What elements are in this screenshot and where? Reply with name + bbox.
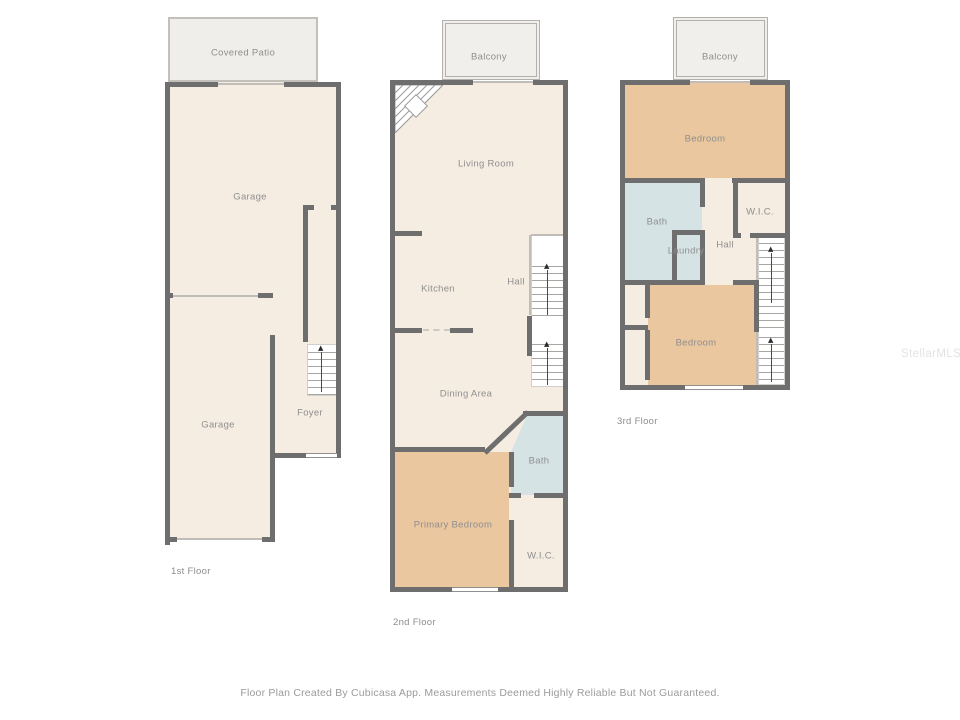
room-balcony-2f — [442, 20, 540, 80]
stair-top-line — [531, 234, 563, 236]
wall — [620, 80, 690, 85]
room-label: Balcony — [471, 52, 507, 63]
room-label: Laundry — [668, 246, 704, 257]
stairs-up-arrow-icon: ▲ — [544, 341, 549, 348]
floor-caption: 3rd Floor — [617, 416, 658, 427]
window — [452, 587, 498, 592]
wall — [620, 325, 648, 330]
balcony-door-opening — [473, 81, 533, 83]
wall — [165, 82, 170, 545]
room-label: Foyer — [297, 408, 323, 419]
wall — [754, 280, 759, 332]
wall — [395, 328, 422, 333]
wall — [331, 205, 341, 210]
patio-door-opening — [218, 83, 284, 85]
room-label: Bedroom — [676, 338, 717, 349]
floor-plan-canvas: ▲ Covered Patio Garage Garage Foyer 1st … — [0, 0, 960, 720]
wall — [700, 230, 705, 285]
stairs-up-arrow-icon: ▲ — [318, 345, 323, 352]
room-label: W.I.C. — [527, 551, 555, 562]
room-label: Dining Area — [440, 389, 492, 400]
wall — [733, 233, 741, 238]
window — [685, 385, 743, 390]
kitchen-counter-line — [423, 329, 450, 331]
wall — [733, 183, 738, 238]
stair-direction-line — [771, 344, 772, 382]
room-label: W.I.C. — [746, 207, 774, 218]
wall — [509, 452, 514, 487]
wall — [785, 80, 790, 390]
stair-direction-line — [547, 270, 548, 315]
wall — [395, 231, 422, 236]
room-label: Kitchen — [421, 284, 455, 295]
room-bedroom-lower — [648, 285, 757, 385]
wall — [750, 233, 785, 238]
wall — [258, 293, 273, 298]
wall — [563, 80, 568, 592]
wall — [390, 80, 473, 85]
room-label: Living Room — [458, 159, 514, 170]
wall — [523, 411, 563, 416]
room-garage-lower — [167, 295, 274, 540]
wall — [390, 80, 395, 592]
room-label: Bedroom — [685, 134, 726, 145]
wall — [645, 330, 650, 380]
wall — [509, 520, 514, 587]
wall — [270, 335, 275, 542]
wall — [527, 316, 532, 356]
stairs-up-arrow-icon: ▲ — [768, 246, 773, 253]
stairs-up-arrow-icon: ▲ — [544, 263, 549, 270]
wall — [620, 178, 705, 183]
room-label: Garage — [201, 420, 235, 431]
room-label: Bath — [529, 456, 550, 467]
balcony-door-opening — [690, 81, 750, 83]
wall — [620, 80, 625, 390]
stairs-up-arrow-icon: ▲ — [768, 337, 773, 344]
room-label: Garage — [233, 192, 267, 203]
wall — [303, 205, 314, 210]
wall — [336, 82, 341, 458]
open-area-hatch — [395, 85, 443, 133]
balcony-rail — [676, 20, 765, 77]
floor-caption: 2nd Floor — [393, 617, 436, 628]
floor-caption: 1st Floor — [171, 566, 211, 577]
balcony-rail — [445, 23, 537, 77]
room-label: Balcony — [702, 52, 738, 63]
room-bedroom-upper — [625, 82, 785, 178]
wall — [509, 493, 521, 498]
garage-divider-door — [170, 295, 258, 297]
wall — [165, 537, 177, 542]
wall — [284, 82, 341, 87]
stair-treads — [308, 352, 336, 395]
stair-direction-line — [771, 253, 772, 303]
stair-direction-line — [321, 352, 322, 392]
front-door — [306, 453, 337, 458]
watermark: StellarMLS — [901, 348, 960, 360]
room-label: Bath — [647, 217, 668, 228]
wall — [732, 178, 790, 183]
disclaimer-text: Floor Plan Created By Cubicasa App. Meas… — [0, 687, 960, 699]
room-label: Hall — [507, 277, 525, 288]
stair-direction-line — [547, 348, 548, 385]
wall — [395, 447, 485, 452]
wall — [750, 80, 790, 85]
room-balcony-3f — [673, 17, 768, 80]
wall — [620, 280, 703, 285]
wall — [262, 537, 274, 542]
wall — [450, 328, 473, 333]
room-label: Covered Patio — [211, 48, 275, 59]
wall — [165, 82, 218, 87]
wall — [645, 285, 650, 318]
stair-side-line — [529, 235, 531, 315]
room-label: Hall — [716, 240, 734, 251]
wall — [672, 230, 677, 285]
wall — [534, 493, 563, 498]
wall — [700, 183, 705, 207]
wall — [303, 205, 308, 342]
wall — [165, 293, 173, 298]
room-label: Primary Bedroom — [414, 520, 492, 531]
garage-door-opening — [177, 538, 262, 540]
